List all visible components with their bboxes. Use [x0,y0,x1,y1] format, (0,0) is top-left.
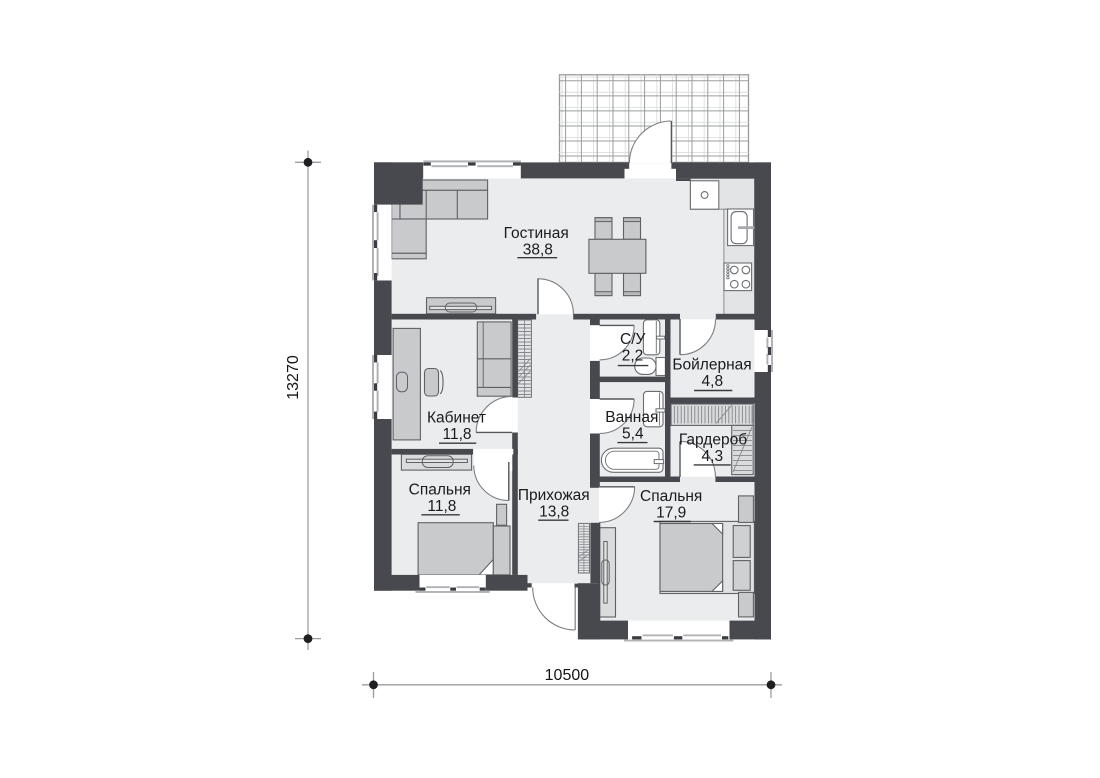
svg-text:5,4: 5,4 [622,426,644,443]
svg-text:10500: 10500 [545,667,590,684]
svg-text:С/У: С/У [620,331,646,348]
svg-text:38,8: 38,8 [523,241,553,258]
svg-text:Гардероб: Гардероб [679,431,747,448]
svg-text:13,8: 13,8 [539,503,569,520]
svg-text:2,2: 2,2 [622,347,644,364]
svg-text:11,8: 11,8 [427,498,456,515]
svg-text:13270: 13270 [285,355,302,400]
svg-text:Кабинет: Кабинет [427,409,486,426]
svg-text:Прихожая: Прихожая [518,487,590,504]
svg-text:17,9: 17,9 [656,505,686,522]
svg-text:4,3: 4,3 [702,448,724,465]
svg-text:Ванная: Ванная [605,409,658,426]
svg-text:4,8: 4,8 [702,373,724,390]
svg-text:Спальня: Спальня [409,481,471,498]
svg-text:Спальня: Спальня [640,488,702,505]
svg-text:11,8: 11,8 [442,426,471,443]
svg-text:Гостиная: Гостиная [504,225,569,242]
svg-text:Бойлерная: Бойлерная [672,357,751,374]
